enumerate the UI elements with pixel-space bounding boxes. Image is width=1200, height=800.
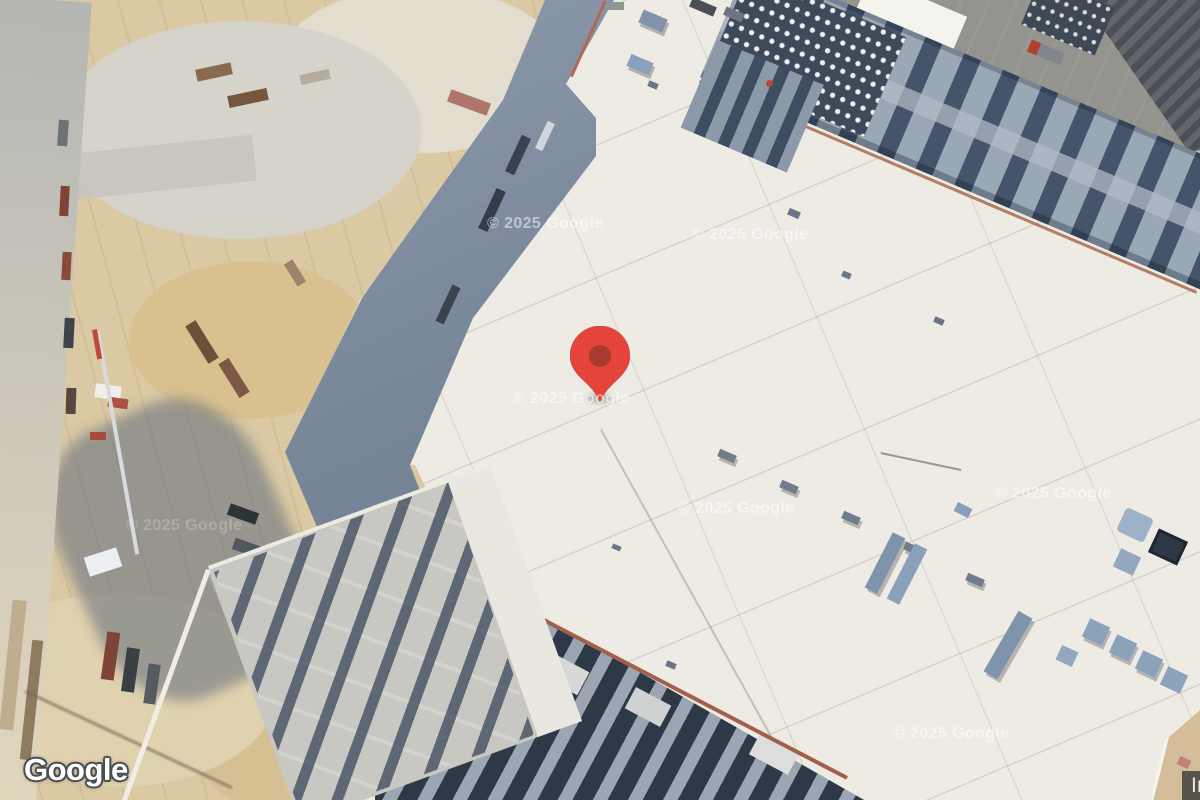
map-watermark: © 2025 Google (678, 500, 795, 518)
attribution-text: Imagery ©2025 Airbus, CNES / Airbus, Max… (1191, 771, 1200, 800)
map-watermark: © 2025 Google (893, 725, 1010, 743)
satellite-map-canvas[interactable]: © 2025 Google © 2025 Google © 2025 Googl… (0, 0, 1200, 800)
attribution-bar: Imagery ©2025 Airbus, CNES / Airbus, Max… (1182, 771, 1200, 800)
map-watermark: © 2025 Google (995, 485, 1112, 503)
google-logo[interactable]: Google (24, 752, 128, 788)
map-watermark: © 2025 Google (692, 226, 809, 244)
map-watermark: © 2025 Google (126, 517, 243, 535)
map-watermark: © 2025 Google (487, 215, 604, 233)
map-watermark: © 2025 Google (513, 390, 630, 408)
